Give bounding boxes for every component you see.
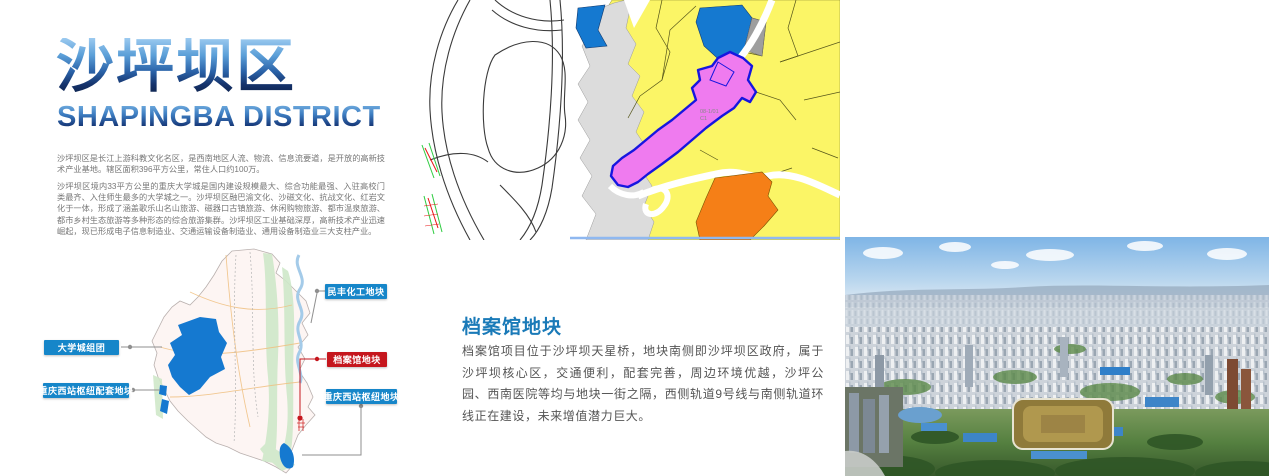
connector-dot-archive [315, 357, 319, 361]
page-title-cn: 沙坪坝区 [56, 38, 296, 96]
archive-site-dot [297, 415, 302, 420]
page-title-en: SHAPINGBA DISTRICT [57, 103, 381, 132]
connector-dot-university [128, 345, 132, 349]
stadium [1013, 399, 1113, 449]
callout-west-station-support-plot: 重庆西站枢纽配套地块 [43, 383, 129, 398]
intro-paragraph-1: 沙坪坝区是长江上游科教文化名区，是西南地区人流、物流、信息流要道，是开放的高新技… [57, 153, 385, 175]
callout-university-town-cluster: 大学城组团 [44, 340, 119, 355]
aerial-photo [845, 237, 1269, 476]
slide-canvas: 沙坪坝区 SHAPINGBA DISTRICT 沙坪坝区是长江上游科教文化名区，… [0, 0, 1269, 476]
parcel-subcode-label: C1 [700, 116, 707, 122]
callout-west-station-hub-plot: 重庆西站枢纽地块 [326, 389, 397, 404]
callout-archive-plot: 档案馆地块 [327, 352, 387, 367]
connector-dot-hub [359, 404, 363, 408]
section-body: 档案馆项目位于沙坪坝天星桥，地块南侧即沙坪坝区政府，属于沙坪坝核心区，交通便利，… [462, 341, 824, 427]
section-heading: 档案馆地块 [462, 312, 562, 339]
intro-paragraph-2: 沙坪坝区境内33平方公里的重庆大学城是国内建设规模最大、综合功能最强、入驻高校门… [57, 181, 385, 237]
callout-minfeng-chemical-plot: 民丰化工地块 [325, 284, 387, 299]
parcel-code-label: 08-1/01 [700, 109, 719, 115]
zoning-map: 08-1/01 C1 [400, 0, 840, 240]
connector-dot-minfeng [315, 289, 319, 293]
